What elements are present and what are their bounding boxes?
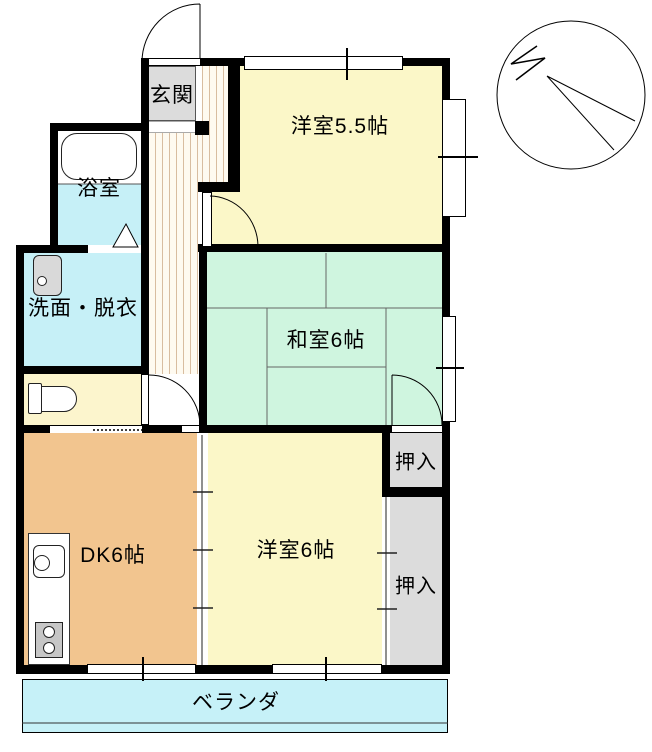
wall	[16, 366, 149, 374]
room-western55-fill-ext	[212, 192, 240, 244]
toilet-door-panel	[141, 374, 149, 425]
japanese-closet-opening	[392, 425, 442, 433]
label-genkan: 玄関	[150, 79, 194, 109]
label-veranda: ベランダ	[192, 686, 280, 716]
entry-door-arc	[142, 4, 200, 62]
stove-burner-icon	[43, 626, 55, 638]
wall	[16, 245, 88, 253]
bath-door-opening	[88, 245, 141, 253]
partition-band-closet	[382, 497, 390, 665]
genkan-step	[148, 121, 196, 133]
wall	[50, 123, 149, 131]
wall	[382, 487, 442, 497]
window	[442, 316, 456, 422]
hallway-floor	[148, 133, 202, 182]
wall	[198, 182, 240, 192]
label-closet2: 押入	[395, 570, 437, 599]
wall	[16, 665, 87, 674]
wall	[195, 121, 209, 135]
western55-door-panel	[202, 192, 212, 247]
wall	[141, 58, 149, 374]
wall	[228, 58, 240, 192]
washbasin-drain-icon	[37, 276, 47, 286]
room-western55-fill	[240, 66, 442, 244]
wall	[198, 244, 448, 252]
north-compass-icon	[497, 21, 645, 169]
label-washroom: 洗面・脱衣	[28, 292, 138, 322]
entry-door-opening	[149, 58, 200, 66]
hall-dk-opening	[182, 425, 199, 433]
label-western6: 洋室6帖	[257, 534, 336, 564]
wall	[207, 425, 392, 433]
wall	[50, 123, 58, 253]
label-japanese6: 和室6帖	[287, 324, 366, 354]
floor-plan: 玄関 浴室 洗面・脱衣 洋室5.5帖 和室6帖 DK6帖 洋室6帖 押入 押入 …	[0, 0, 652, 752]
wall	[196, 665, 272, 674]
window	[244, 56, 403, 70]
hallway-floor	[148, 182, 198, 374]
toilet-bowl	[41, 386, 77, 412]
partition-band-dk	[197, 433, 208, 665]
window	[442, 99, 466, 217]
window	[272, 664, 382, 674]
window	[87, 664, 196, 674]
wall	[142, 425, 182, 433]
washbasin	[33, 255, 62, 296]
label-dk: DK6帖	[80, 539, 146, 569]
wall	[16, 245, 24, 674]
toilet-dk-opening	[50, 425, 142, 433]
label-closet1: 押入	[395, 446, 437, 475]
stove-burner-icon	[43, 642, 55, 654]
wall	[199, 252, 207, 433]
label-bathroom: 浴室	[77, 172, 121, 202]
wall	[16, 425, 50, 433]
toilet-door-arc	[149, 375, 200, 426]
kitchen-faucet-icon	[34, 555, 50, 571]
label-western55: 洋室5.5帖	[291, 110, 389, 140]
wall	[382, 665, 448, 674]
toilet-tank	[28, 383, 42, 414]
